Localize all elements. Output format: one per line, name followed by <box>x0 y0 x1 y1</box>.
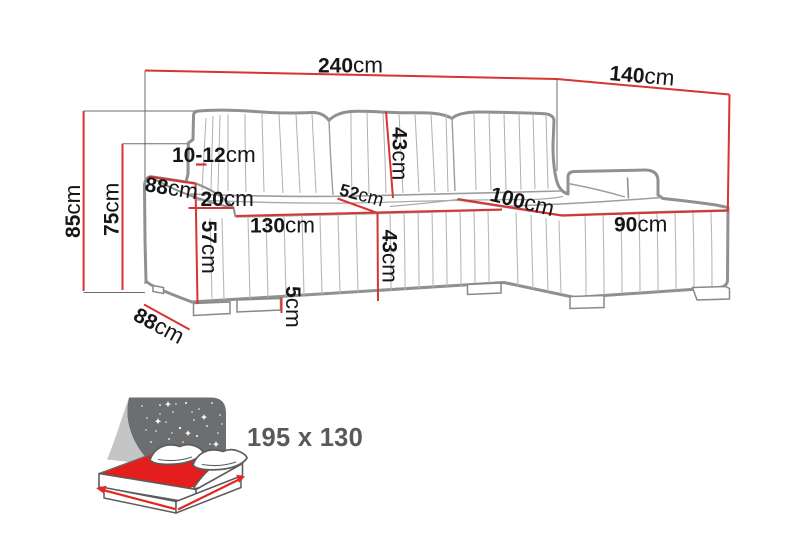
svg-text:43cm: 43cm <box>388 127 413 180</box>
svg-text:90cm: 90cm <box>614 212 667 237</box>
svg-text:75cm: 75cm <box>99 183 124 236</box>
svg-text:130cm: 130cm <box>250 213 315 238</box>
svg-text:20cm: 20cm <box>201 186 254 211</box>
svg-text:10-12cm: 10-12cm <box>172 142 256 167</box>
svg-text:85cm: 85cm <box>60 185 85 238</box>
svg-text:195 x 130: 195 x 130 <box>247 424 363 452</box>
svg-text:5cm: 5cm <box>281 286 306 328</box>
svg-text:43cm: 43cm <box>378 230 403 283</box>
svg-text:57cm: 57cm <box>197 221 222 274</box>
svg-text:240cm: 240cm <box>318 53 383 78</box>
